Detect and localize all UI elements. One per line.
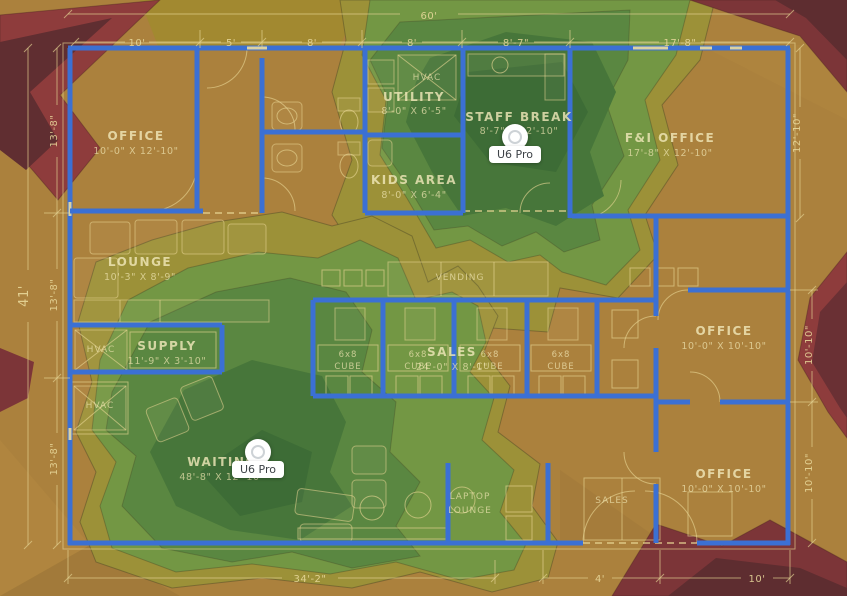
- room-dims-kids-area: 8'-0" X 6'-4": [381, 190, 446, 201]
- label-cube3-word: CUBE: [476, 362, 503, 372]
- label-cube2-size: 6x8: [409, 350, 428, 360]
- room-label-sales: SALES: [427, 345, 477, 359]
- room-dims-lounge: 10'-3" X 8'-9": [104, 272, 176, 283]
- dim-bottom-1: 4': [595, 574, 605, 585]
- wifi-heatmap-canvas: 60' 10' 5' 8' 8' 8'-7" 17'-8" 41' 13': [0, 0, 847, 596]
- label-cube3-size: 6x8: [481, 350, 500, 360]
- dim-top-4: 8'-7": [503, 38, 529, 49]
- lounge-chair: [182, 220, 224, 254]
- dim-right-0: 12'-10": [792, 113, 803, 153]
- room-label-utility: UTILITY: [383, 90, 445, 104]
- label-vending: VENDING: [436, 273, 485, 283]
- access-point-label-1[interactable]: U6 Pro: [489, 146, 541, 163]
- lounge-chair: [135, 220, 177, 254]
- dim-bottom-0: 34'-2": [293, 574, 326, 585]
- lounge-chair: [228, 224, 266, 254]
- label-hvac-mid: HVAC: [87, 345, 116, 355]
- toilet-tank-1: [338, 98, 360, 111]
- dim-top-total: 60': [421, 11, 438, 22]
- room-dims-office-tl: 10'-0" X 12'-10": [93, 146, 178, 157]
- label-cube4-size: 6x8: [552, 350, 571, 360]
- utility-sink: [368, 140, 392, 166]
- waiting-chair: [352, 480, 386, 508]
- access-point-icon: [508, 130, 522, 144]
- dim-top-3: 8': [407, 38, 417, 49]
- label-sales-desk: SALES: [595, 496, 628, 506]
- room-dims-utility: 8'-0" X 6'-5": [381, 106, 446, 117]
- floorplan-svg: 60' 10' 5' 8' 8' 8'-7" 17'-8" 41' 13': [0, 0, 847, 596]
- room-dims-office-r1: 10'-0" X 10'-10": [681, 341, 766, 352]
- room-label-supply: SUPPLY: [137, 339, 196, 353]
- dim-right-1: 10'-10": [804, 325, 815, 365]
- utility-appliance: [368, 60, 394, 84]
- dim-top-5: 17'-8": [663, 38, 696, 49]
- label-cube1-size: 6x8: [339, 350, 358, 360]
- dim-left-1: 13'-8": [49, 278, 60, 311]
- dim-left-total: 41': [17, 285, 32, 307]
- dim-left-2: 13'-8": [49, 442, 60, 475]
- dim-top-0: 10': [129, 38, 146, 49]
- dim-right-2: 10'-10": [804, 453, 815, 493]
- heatmap-olive-strip: [140, 0, 360, 46]
- room-dims-fi-office: 17'-8" X 12'-10": [627, 148, 712, 159]
- lounge-credenza: [74, 300, 269, 322]
- dim-top-2: 8': [307, 38, 317, 49]
- room-label-office-tl: OFFICE: [107, 129, 164, 143]
- room-dims-supply: 11'-9" X 3'-10": [128, 356, 207, 367]
- label-hvac-top: HVAC: [413, 73, 442, 83]
- access-point-icon: [251, 445, 265, 459]
- label-laptop-1: LAPTOP: [450, 492, 491, 502]
- toilet-tank-2: [338, 142, 360, 155]
- room-label-fi-office: F&I OFFICE: [625, 131, 715, 145]
- label-cube2-word: CUBE: [404, 362, 431, 372]
- lounge-chair: [90, 222, 130, 254]
- access-point-label-2[interactable]: U6 Pro: [232, 461, 284, 478]
- waiting-chair: [352, 446, 386, 474]
- room-label-office-r1: OFFICE: [695, 324, 752, 338]
- label-hvac-low: HVAC: [86, 401, 115, 411]
- room-label-office-r2: OFFICE: [695, 467, 752, 481]
- dim-bottom-2: 10': [749, 574, 766, 585]
- room-label-staff-break: STAFF BREAK: [465, 110, 572, 124]
- break-cabinet: [545, 54, 565, 100]
- dim-top-1: 5': [226, 38, 236, 49]
- room-label-kids-area: KIDS AREA: [371, 173, 457, 187]
- dim-left-0: 13'-8": [49, 114, 60, 147]
- room-dims-office-r2: 10'-0" X 10'-10": [681, 484, 766, 495]
- label-cube4-word: CUBE: [547, 362, 574, 372]
- label-laptop-2: LOUNGE: [448, 506, 492, 516]
- room-label-lounge: LOUNGE: [108, 255, 172, 269]
- label-cube1-word: CUBE: [334, 362, 361, 372]
